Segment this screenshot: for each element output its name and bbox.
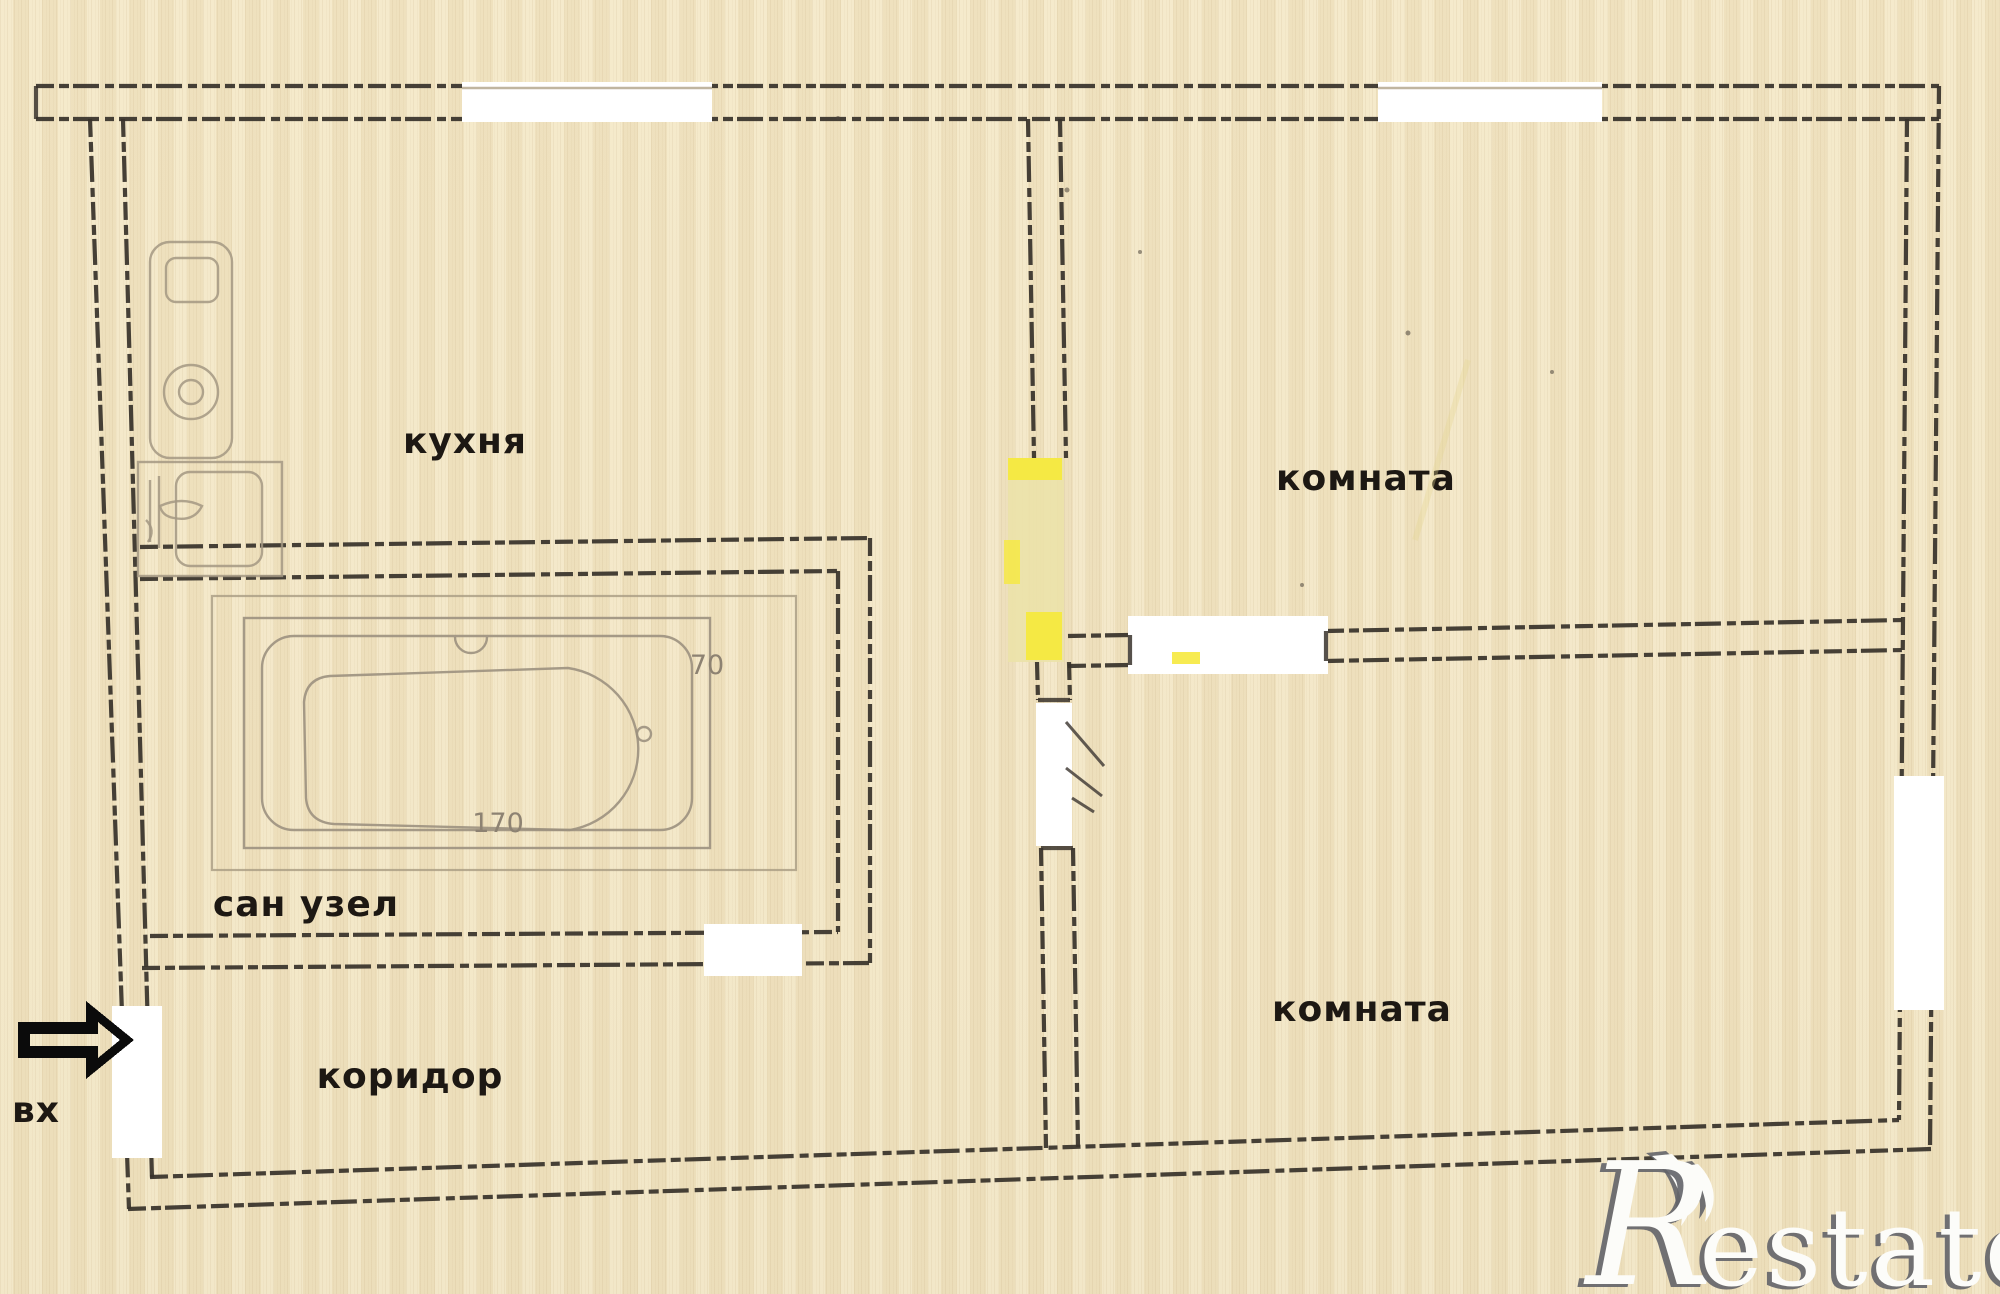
- bathtub-width-dimension: 70: [690, 650, 724, 681]
- watermark-rest: estate: [1699, 1186, 2000, 1294]
- corridor-label: коридор: [317, 1056, 504, 1097]
- floor-plan-drawing: 170 70 кухня комната комната сан узел ко…: [0, 0, 2000, 1294]
- bathtub-length-dimension: 170: [472, 808, 524, 839]
- outer-walls: [36, 86, 1939, 1209]
- bathroom-door-opening-icon: [704, 924, 802, 976]
- water-heater-icon: [150, 242, 232, 458]
- rooms-divider-wall: [1068, 616, 1904, 674]
- balcony-door-opening-icon: [1894, 776, 1944, 1010]
- entrance: [18, 1001, 162, 1158]
- divider-door-opening-icon: [1128, 616, 1328, 674]
- room-bottom-label: комната: [1272, 989, 1452, 1030]
- kitchen-label: кухня: [403, 421, 527, 462]
- central-wall: [1004, 119, 1078, 1148]
- entrance-label: вх: [12, 1090, 60, 1131]
- scanned-floor-plan-page: { "plan": { "rooms": { "kitchen": { "lab…: [0, 0, 2000, 1294]
- bathroom-interior: 170 70: [212, 596, 796, 870]
- kitchen-fixtures: [138, 242, 282, 576]
- kitchen-sink-icon: [138, 462, 282, 576]
- scan-noise: [836, 116, 1554, 587]
- bathroom-label: сан узел: [213, 884, 399, 925]
